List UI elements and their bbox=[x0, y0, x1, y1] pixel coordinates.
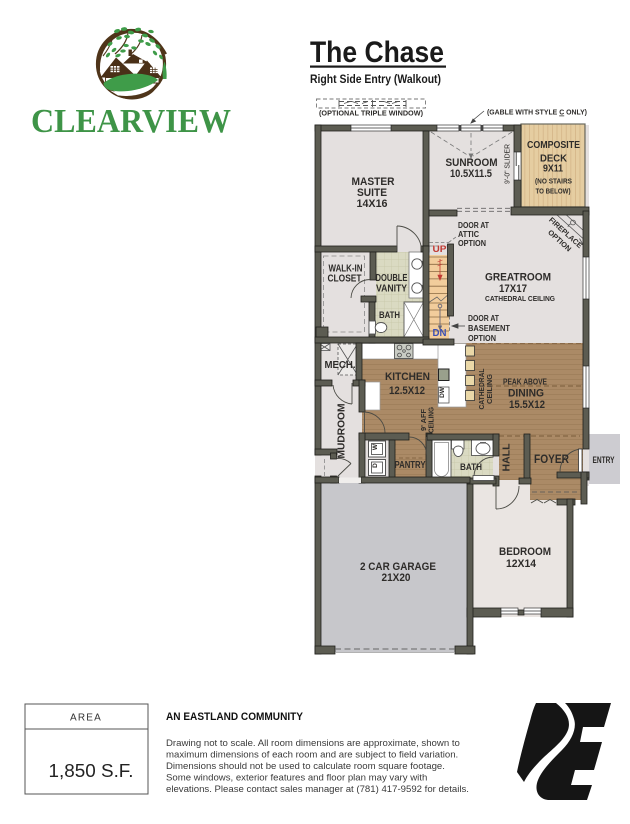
svg-text:CEILING: CEILING bbox=[429, 406, 436, 433]
svg-text:OPTION: OPTION bbox=[458, 238, 486, 248]
svg-text:ENTRY: ENTRY bbox=[593, 455, 615, 465]
svg-text:DW: DW bbox=[439, 386, 446, 398]
svg-text:21X20: 21X20 bbox=[382, 572, 411, 584]
svg-text:12X14: 12X14 bbox=[506, 558, 537, 570]
svg-text:DINING: DINING bbox=[508, 388, 544, 400]
svg-text:CLOSET: CLOSET bbox=[328, 274, 362, 285]
svg-text:MECH.: MECH. bbox=[325, 360, 356, 371]
svg-text:Right Side Entry (Walkout): Right Side Entry (Walkout) bbox=[310, 74, 441, 86]
svg-text:14X16: 14X16 bbox=[357, 198, 388, 210]
svg-text:BATH: BATH bbox=[379, 310, 400, 321]
svg-text:9' AFF: 9' AFF bbox=[421, 408, 428, 431]
svg-text:GREATROOM: GREATROOM bbox=[485, 272, 551, 284]
svg-text:VANITY: VANITY bbox=[376, 284, 407, 295]
svg-text:CATHEDRAL CEILING: CATHEDRAL CEILING bbox=[485, 295, 555, 303]
svg-text:DOOR AT: DOOR AT bbox=[468, 313, 500, 323]
svg-text:15.5X12: 15.5X12 bbox=[509, 399, 545, 411]
svg-text:The Chase: The Chase bbox=[310, 36, 444, 69]
svg-text:BEDROOM: BEDROOM bbox=[499, 546, 551, 558]
svg-text:1,850 S.F.: 1,850 S.F. bbox=[49, 760, 134, 781]
svg-text:AREA: AREA bbox=[70, 713, 102, 724]
svg-text:DOUBLE: DOUBLE bbox=[376, 273, 408, 284]
svg-text:W: W bbox=[372, 443, 379, 450]
svg-text:D: D bbox=[372, 463, 379, 468]
svg-text:FOYER: FOYER bbox=[534, 454, 570, 466]
svg-text:DN: DN bbox=[433, 327, 447, 339]
svg-text:KITCHEN: KITCHEN bbox=[385, 371, 430, 383]
svg-text:BASEMENT: BASEMENT bbox=[468, 323, 511, 333]
svg-text:12.5X12: 12.5X12 bbox=[389, 385, 425, 397]
svg-text:Some windows, exterior feature: Some windows, exterior features and floo… bbox=[166, 773, 427, 784]
svg-text:OPTION: OPTION bbox=[468, 333, 496, 343]
svg-text:(OPTIONAL TRIPLE WINDOW): (OPTIONAL TRIPLE WINDOW) bbox=[319, 109, 423, 118]
svg-text:COMPOSITE: COMPOSITE bbox=[527, 140, 580, 151]
svg-text:PEAK ABOVE: PEAK ABOVE bbox=[503, 378, 548, 387]
svg-text:CLEARVIEW: CLEARVIEW bbox=[31, 103, 231, 140]
svg-text:PANTRY: PANTRY bbox=[395, 460, 426, 471]
svg-text:Drawing not to scale. All room: Drawing not to scale. All room dimension… bbox=[166, 738, 460, 749]
svg-text:AN EASTLAND COMMUNITY: AN EASTLAND COMMUNITY bbox=[166, 711, 304, 723]
svg-text:(GABLE WITH STYLE C ONLY): (GABLE WITH STYLE C ONLY) bbox=[487, 108, 587, 117]
svg-text:BATH: BATH bbox=[460, 462, 482, 472]
svg-text:Dimensions should not be used: Dimensions should not be used to calcula… bbox=[166, 761, 445, 772]
svg-text:(NO STAIRS: (NO STAIRS bbox=[535, 177, 572, 186]
svg-text:maximum dimensions of each roo: maximum dimensions of each room and are … bbox=[166, 750, 458, 761]
svg-text:MUDROOM: MUDROOM bbox=[336, 403, 348, 458]
svg-text:HALL: HALL bbox=[501, 443, 513, 472]
svg-text:CEILING: CEILING bbox=[485, 374, 494, 404]
svg-text:10.5X11.5: 10.5X11.5 bbox=[450, 168, 492, 180]
svg-text:UP: UP bbox=[433, 244, 448, 255]
svg-text:elevations. Please contact sal: elevations. Please contact sales manager… bbox=[166, 784, 469, 795]
svg-text:TO BELOW): TO BELOW) bbox=[536, 187, 571, 196]
svg-text:17X17: 17X17 bbox=[499, 283, 527, 295]
svg-text:9X11: 9X11 bbox=[543, 164, 563, 175]
svg-text:9'-0" SLIDER: 9'-0" SLIDER bbox=[505, 144, 512, 184]
